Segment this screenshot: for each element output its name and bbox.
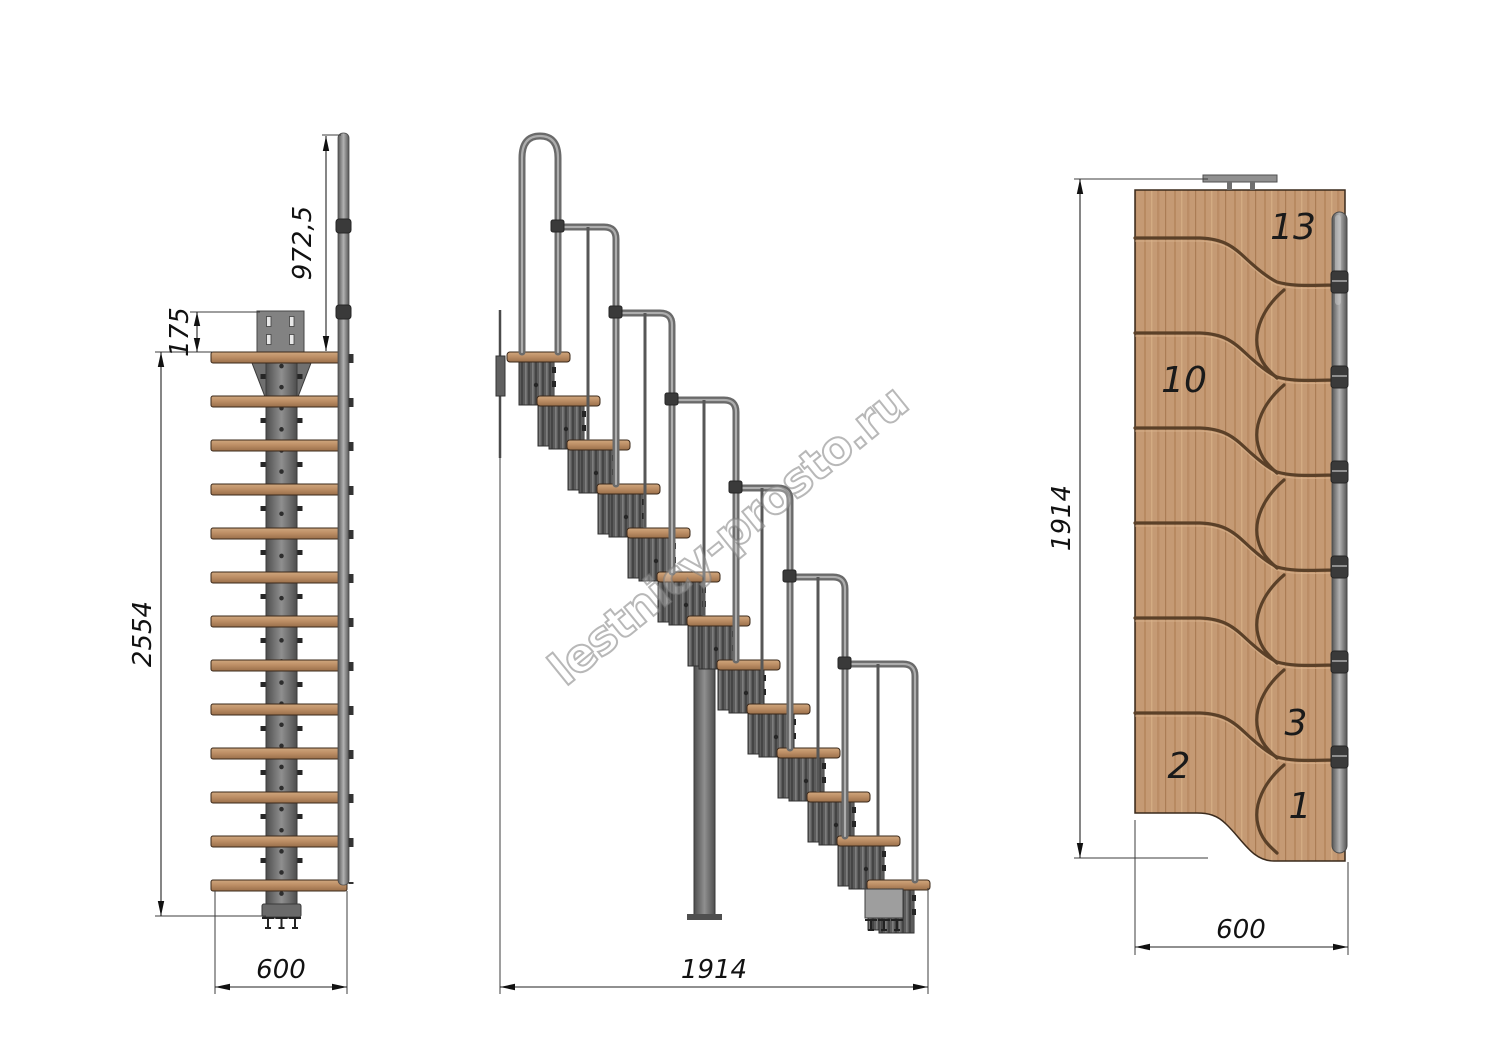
dimension-label-plan-length: 1914 [1047,485,1077,551]
drawing-canvas: 972,5 175 2554 600 [0,0,1500,1061]
top-bracket [1203,175,1277,182]
handrail-hoop [522,136,558,352]
wall-mount-plate-side [496,356,505,396]
front-view: 972,5 175 2554 600 [128,133,351,994]
handrail [522,136,915,880]
dimension-label-front-width: 600 [256,955,306,985]
support-leg-foot [687,914,722,920]
dimension-label-total-height: 2554 [128,601,158,667]
staircase-drawing: 972,5 175 2554 600 [0,0,1500,1061]
floor-anchors [262,918,301,928]
dimension-total-height: 2554 [128,352,266,916]
dimension-label-rail-height: 972,5 [288,206,318,280]
support-leg [694,664,715,916]
base-module [865,889,903,918]
dimension-label-plate-offset: 175 [165,307,195,357]
tread-number-13: 13 [1270,207,1316,248]
dimension-plate-offset: 175 [155,307,260,357]
step-modules [507,352,930,933]
dimension-label-total-run: 1914 [681,955,747,985]
tread-number-2: 2 [1168,746,1191,787]
bracket-stem [1250,182,1255,190]
handrail-post [338,133,349,885]
post-sleeve-lower [336,305,351,319]
post-sleeve-upper [336,219,351,233]
bracket-stem [1227,182,1232,190]
base-anchors [865,920,903,930]
plan-view: 13 10 3 2 1 1914 600 [1047,175,1348,955]
tread-number-10: 10 [1161,360,1207,401]
side-view: 1914 [496,136,930,994]
tread-number-3: 3 [1285,703,1308,744]
wall-mount-plate [257,311,304,352]
tread-number-1: 1 [1289,786,1312,827]
column-base [262,904,301,917]
dimension-label-plan-width: 600 [1216,915,1266,945]
central-column [266,352,297,918]
